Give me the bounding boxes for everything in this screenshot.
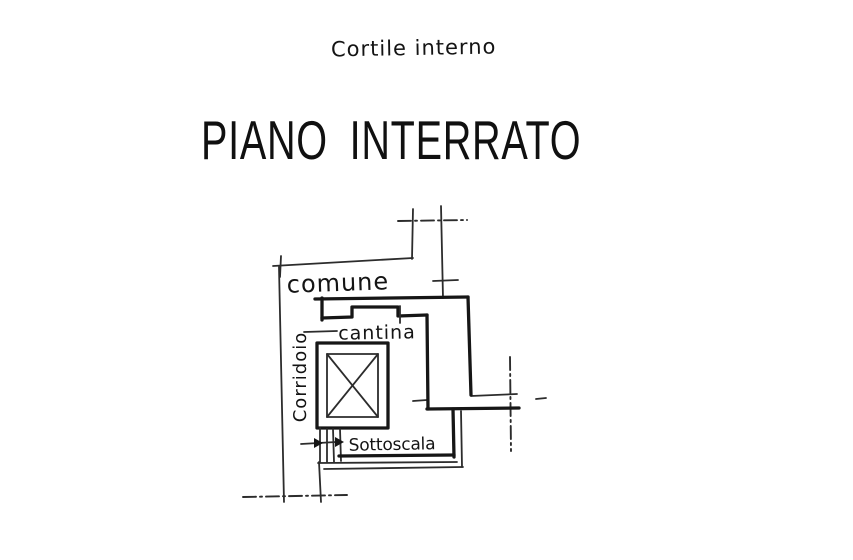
room-label-sottoscala: Sottoscala (348, 434, 435, 456)
direction-arrow-icon (301, 437, 344, 448)
scanned-floor-plan-sheet: Cortile interno PIANO INTERRATO (0, 0, 853, 560)
room-label-corridoio: Corridoio (290, 332, 311, 423)
room-label-cantina: cantina (338, 321, 416, 344)
stair-shaft-cross (317, 343, 388, 428)
site-boundary-lines (243, 206, 546, 502)
room-label-comune: comune (286, 267, 389, 299)
floor-plan-drawing: comune cantina Corridoio Sottoscala (0, 0, 853, 560)
